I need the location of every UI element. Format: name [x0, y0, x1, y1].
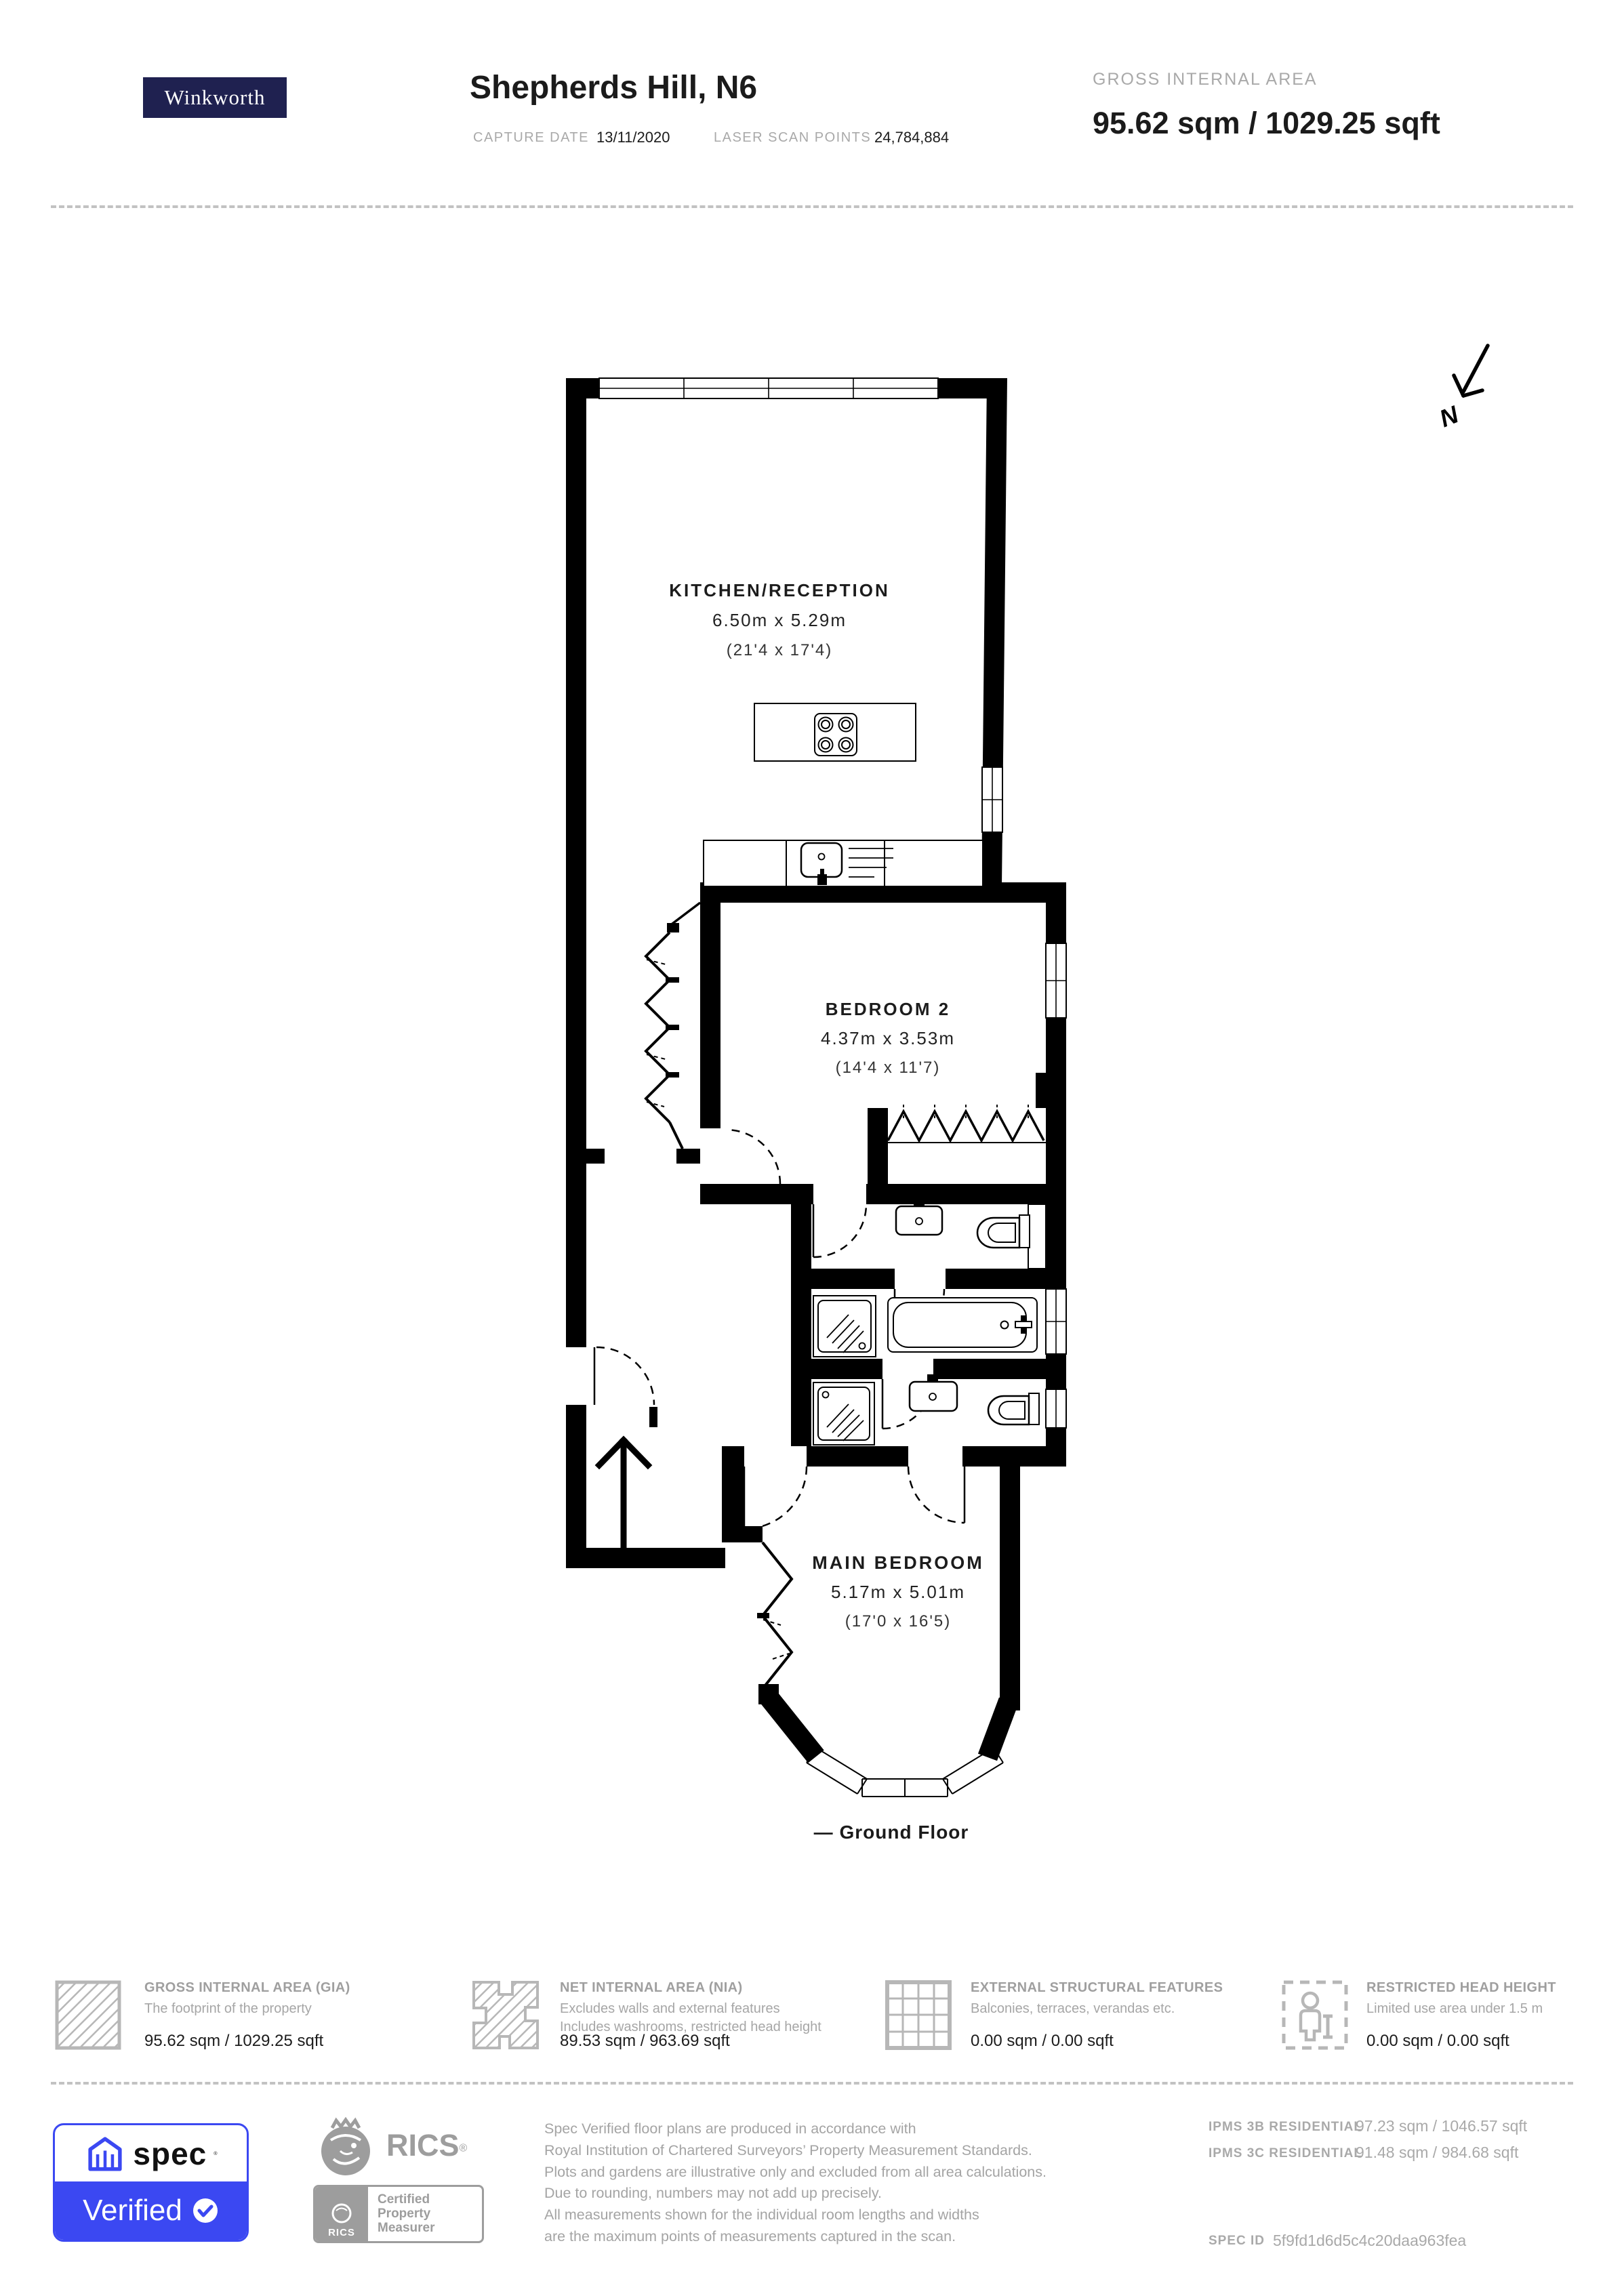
legend-nia-desc1: Excludes walls and external features: [560, 2000, 821, 2018]
spec-id-value: 5f9fd1d6d5c4c20daa963fea: [1273, 2232, 1466, 2250]
divider-bottom: [51, 2082, 1573, 2085]
spec-reg-mark: ®: [214, 2150, 217, 2156]
bedroom2-dims-metric: 4.37m x 3.53m: [821, 1028, 955, 1048]
kitchen-counter: [704, 840, 983, 886]
bathroom1: [896, 1199, 1046, 1269]
shower-room-toilet-icon: [988, 1393, 1039, 1424]
north-arrow: N: [1420, 336, 1522, 445]
disclaimer-line1: Spec Verified floor plans are produced i…: [544, 2118, 1047, 2140]
main-bedroom-name: MAIN BEDROOM: [812, 1553, 984, 1573]
certified-line1: Certified: [378, 2192, 435, 2207]
legend-icon-rhh: [1281, 1980, 1349, 2050]
legend-icon-gia: [54, 1980, 122, 2050]
legend-nia-value: 89.53 sqm / 963.69 sqft: [560, 2032, 730, 2051]
rics-reg-mark: ®: [460, 2143, 468, 2154]
kitchen-dims-metric: 6.50m x 5.29m: [712, 610, 847, 630]
shower1-icon: [813, 1296, 876, 1357]
bath-icon: [888, 1298, 1037, 1352]
shower-room-sink-icon: [910, 1374, 957, 1411]
ipms-3c-label: IPMS 3C RESIDENTIAL: [1209, 2146, 1362, 2161]
legend-esf-value: 0.00 sqm / 0.00 sqft: [971, 2032, 1114, 2051]
kitchen-name: KITCHEN/RECEPTION: [669, 580, 889, 600]
disclaimer-line5: All measurements shown for the individua…: [544, 2205, 1047, 2226]
gross-internal-area-value: 95.62 sqm / 1029.25 sqft: [1093, 106, 1440, 141]
north-arrow-icon: [1454, 346, 1488, 396]
bay-window: [767, 1696, 1009, 1797]
legend-gia-desc: The footprint of the property: [144, 2000, 350, 2018]
kitchen-top-window: [599, 378, 938, 398]
kitchen-side-window: [982, 767, 1002, 832]
disclaimer-line3: Plots and gardens are illustrative only …: [544, 2162, 1047, 2184]
rics-lion-icon: [313, 2117, 381, 2177]
winkworth-logo: Winkworth: [143, 77, 287, 118]
page-title: Shepherds Hill, N6: [470, 69, 757, 106]
divider-top: [51, 205, 1573, 208]
north-label: N: [1436, 400, 1463, 432]
floor-plan: KITCHEN/RECEPTION 6.50m x 5.29m (21'4 x …: [556, 373, 1105, 1850]
spec-house-icon: [84, 2134, 126, 2173]
plan-walls: [566, 378, 1066, 1710]
legend-gia-label: GROSS INTERNAL AREA (GIA): [144, 1980, 350, 1996]
laser-scan-value: 24,784,884: [874, 129, 949, 146]
legend-esf-desc: Balconies, terraces, verandas etc.: [971, 2000, 1223, 2018]
door-leaves: [594, 1204, 965, 1529]
winkworth-logo-text: Winkworth: [165, 85, 266, 110]
entrance-arrow: [599, 1440, 648, 1546]
main-bedroom-dims-metric: 5.17m x 5.01m: [831, 1582, 965, 1602]
floorplan-page: { "header": { "logo": "Winkworth", "titl…: [0, 0, 1624, 2296]
disclaimer-text: Spec Verified floor plans are produced i…: [544, 2118, 1047, 2248]
legend-gia-value: 95.62 sqm / 1029.25 sqft: [144, 2032, 323, 2051]
kitchen-dims-imperial: (21'4 x 17'4): [727, 641, 833, 659]
certified-line3: Measurer: [378, 2221, 435, 2235]
bedroom2-dims-imperial: (14'4 x 11'7): [836, 1059, 941, 1077]
certified-line2: Property: [378, 2207, 435, 2221]
legend-rhh-label: RESTRICTED HEAD HEIGHT: [1366, 1980, 1556, 1996]
gross-internal-area-label: GROSS INTERNAL AREA: [1093, 70, 1318, 89]
laser-scan-label: LASER SCAN POINTS: [714, 130, 871, 146]
ipms-3c-value: 91.48 sqm / 984.68 sqft: [1356, 2144, 1518, 2162]
verified-text: Verified: [83, 2194, 182, 2228]
ipms-3b-label: IPMS 3B RESIDENTIAL: [1209, 2120, 1362, 2135]
bedroom2-window: [1046, 943, 1066, 1018]
floor-caption: — Ground Floor: [742, 1822, 1040, 1843]
rics-wordmark: RICS: [386, 2128, 460, 2162]
ipms-3b-value: 97.23 sqm / 1046.57 sqft: [1356, 2117, 1527, 2135]
legend-esf-label: EXTERNAL STRUCTURAL FEATURES: [971, 1980, 1223, 1996]
disclaimer-line4: Due to rounding, numbers may not add up …: [544, 2183, 1047, 2205]
shower2-icon: [813, 1382, 874, 1445]
disclaimer-line2: Royal Institution of Chartered Surveyors…: [544, 2140, 1047, 2162]
capture-date-value: 13/11/2020: [596, 129, 670, 146]
legend-nia-label: NET INTERNAL AREA (NIA): [560, 1980, 821, 1996]
rics-small-text: RICS: [328, 2227, 355, 2238]
bathroom-window: [1046, 1289, 1066, 1354]
spec-verified-badge: spec® Verified: [53, 2123, 249, 2242]
legend-rhh-desc: Limited use area under 1.5 m: [1366, 2000, 1556, 2018]
legend-icon-nia: [472, 1980, 540, 2050]
rics-mini-lion-icon: [330, 2202, 353, 2227]
wardrobe: [888, 1105, 1046, 1143]
kitchen-island: [754, 703, 916, 761]
verified-check-icon: [192, 2197, 219, 2224]
height-bar-icon: [1323, 2016, 1333, 2037]
rics-certified-badge: RICS Certified Property Measurer: [313, 2185, 484, 2243]
shower-room-window: [1046, 1389, 1066, 1428]
shower-room: [813, 1374, 1039, 1445]
spec-id-label: SPEC ID: [1209, 2234, 1265, 2249]
legend-icon-esf: [885, 1980, 952, 2050]
person-icon: [1301, 1993, 1320, 2040]
legend-rhh-value: 0.00 sqm / 0.00 sqft: [1366, 2032, 1509, 2051]
bathroom1-toilet-icon: [977, 1215, 1030, 1248]
bathroom2: [813, 1296, 1037, 1357]
main-bedroom-dims-imperial: (17'0 x 16'5): [845, 1612, 952, 1631]
spec-wordmark: spec: [133, 2135, 207, 2172]
disclaimer-line6: are the maximum points of measurements c…: [544, 2226, 1047, 2248]
bedroom2-name: BEDROOM 2: [826, 999, 950, 1019]
capture-date-label: CAPTURE DATE: [473, 130, 589, 146]
